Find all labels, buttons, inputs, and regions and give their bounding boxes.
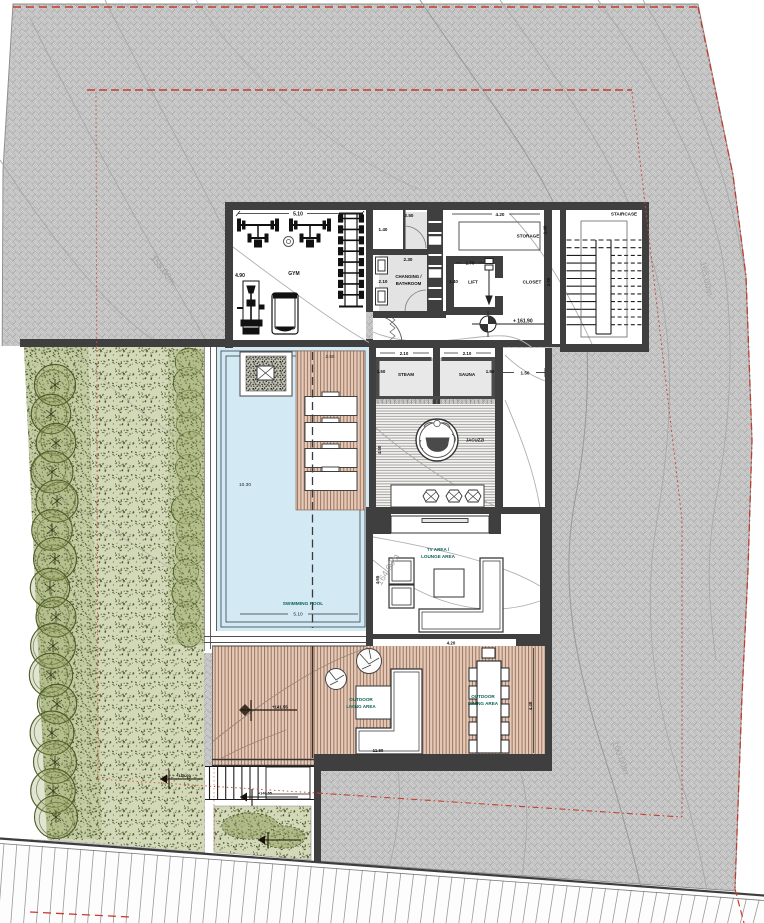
- svg-text:STORAGE: STORAGE: [517, 234, 540, 239]
- svg-text:1.40: 1.40: [543, 225, 548, 234]
- svg-text:4.40: 4.40: [528, 701, 533, 710]
- svg-text:4.90: 4.90: [235, 273, 245, 279]
- svg-text:2.05: 2.05: [546, 277, 551, 286]
- svg-text:1.40: 1.40: [379, 227, 388, 232]
- svg-text:2.10: 2.10: [400, 351, 409, 356]
- svg-text:CHANGING /: CHANGING /: [395, 274, 422, 279]
- svg-text:1.50: 1.50: [521, 371, 530, 376]
- svg-text:1.50: 1.50: [377, 369, 386, 374]
- svg-text:+145.00: +145.00: [176, 773, 191, 778]
- svg-text:+ 161.90: + 161.90: [513, 319, 533, 325]
- svg-text:JACUZZI: JACUZZI: [466, 438, 485, 443]
- svg-text:BATHROOM: BATHROOM: [396, 281, 422, 286]
- svg-text:2.50: 2.50: [405, 213, 414, 218]
- svg-text:5.10: 5.10: [293, 612, 303, 618]
- svg-text:2.50: 2.50: [326, 354, 335, 359]
- svg-text:+141.55: +141.55: [272, 705, 288, 710]
- svg-text:STAIRCASE: STAIRCASE: [611, 212, 637, 217]
- svg-text:2.30: 2.30: [404, 257, 413, 262]
- svg-text:SWIMMING POOL: SWIMMING POOL: [283, 601, 324, 607]
- svg-text:STEAM: STEAM: [398, 372, 414, 377]
- svg-text:DINING AREA: DINING AREA: [468, 701, 499, 706]
- svg-text:LIFT: LIFT: [468, 280, 478, 285]
- svg-text:10.30: 10.30: [239, 482, 251, 488]
- svg-text:4.20: 4.20: [496, 212, 505, 217]
- svg-text:+146.55: +146.55: [258, 792, 272, 796]
- svg-text:1.40: 1.40: [449, 279, 458, 284]
- svg-text:OUTDOOR: OUTDOOR: [471, 694, 495, 699]
- svg-text:1.70: 1.70: [466, 261, 475, 266]
- svg-text:TV AREA /: TV AREA /: [427, 547, 450, 552]
- svg-text:4.20: 4.20: [447, 641, 456, 646]
- svg-text:11.50: 11.50: [373, 748, 384, 753]
- svg-text:2.10: 2.10: [463, 351, 472, 356]
- svg-text:1.50: 1.50: [486, 369, 495, 374]
- svg-text:GYM: GYM: [288, 271, 299, 277]
- svg-text:LOUNGE AREA: LOUNGE AREA: [421, 554, 455, 559]
- svg-text:LIVING AREA: LIVING AREA: [346, 704, 376, 709]
- svg-text:4.50: 4.50: [377, 445, 382, 454]
- svg-text:2.10: 2.10: [379, 279, 388, 284]
- svg-text:5.10: 5.10: [293, 212, 303, 218]
- svg-text:OUTDOOR: OUTDOOR: [349, 697, 373, 702]
- svg-text:SAUNA: SAUNA: [459, 372, 476, 377]
- svg-text:CLOSET: CLOSET: [523, 280, 542, 285]
